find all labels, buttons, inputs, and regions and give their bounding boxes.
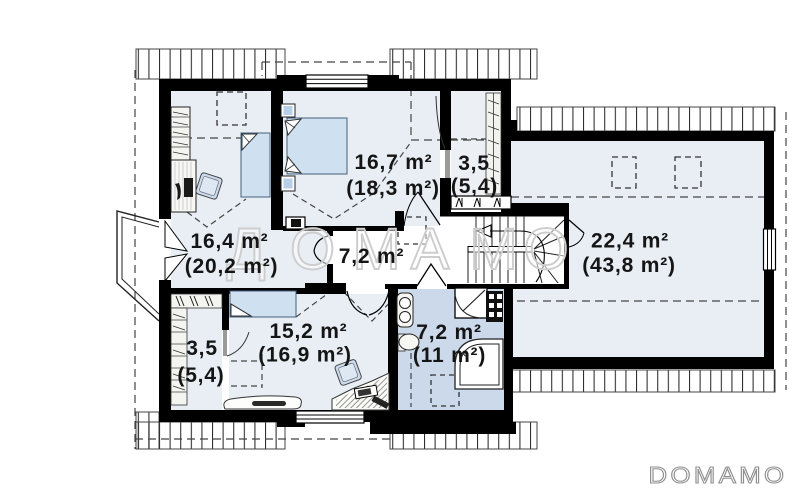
svg-text:3,5: 3,5 bbox=[458, 152, 490, 175]
svg-text:DOMAMO: DOMAMO bbox=[649, 463, 788, 488]
svg-text:3,5: 3,5 bbox=[186, 337, 218, 360]
svg-text:22,4 m²: 22,4 m² bbox=[591, 230, 669, 253]
svg-text:15,2 m²: 15,2 m² bbox=[270, 320, 348, 343]
svg-text:16,4 m²: 16,4 m² bbox=[191, 230, 269, 253]
svg-text:16,7 m²: 16,7 m² bbox=[355, 151, 433, 174]
svg-text:(18,3 m²): (18,3 m²) bbox=[346, 177, 440, 200]
svg-text:(43,8 m²): (43,8 m²) bbox=[582, 254, 676, 277]
svg-text:7,2 m²: 7,2 m² bbox=[339, 245, 405, 268]
svg-text:(5,4): (5,4) bbox=[177, 364, 224, 387]
svg-text:(11 m²): (11 m²) bbox=[413, 344, 486, 367]
svg-text:(20,2 m²): (20,2 m²) bbox=[185, 255, 279, 278]
svg-text:(16,9 m²): (16,9 m²) bbox=[258, 344, 352, 367]
svg-text:7,2 m²: 7,2 m² bbox=[416, 321, 482, 344]
svg-text:(5,4): (5,4) bbox=[451, 175, 498, 198]
